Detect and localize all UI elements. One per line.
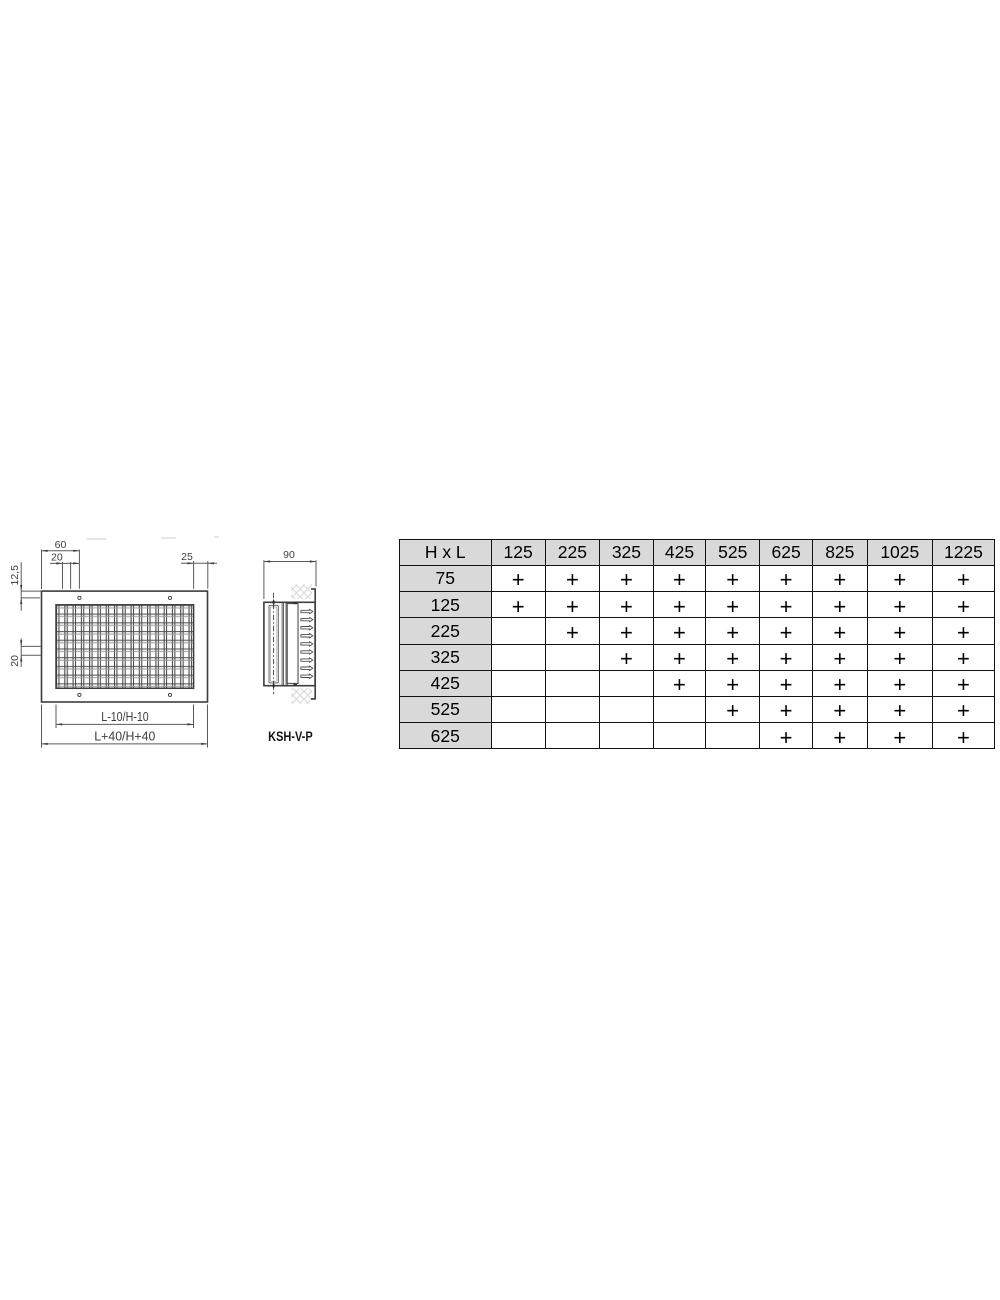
svg-text:12,5: 12,5: [9, 565, 21, 586]
svg-text:90: 90: [283, 549, 295, 561]
svg-text:60: 60: [55, 539, 67, 551]
svg-text:20: 20: [51, 551, 63, 563]
svg-text:20: 20: [9, 655, 21, 667]
svg-text:L+40/H+40: L+40/H+40: [94, 729, 155, 743]
svg-text:KSH-V-P: KSH-V-P: [268, 729, 313, 744]
svg-text:L-10/H-10: L-10/H-10: [101, 710, 149, 724]
svg-text:25: 25: [181, 551, 193, 563]
